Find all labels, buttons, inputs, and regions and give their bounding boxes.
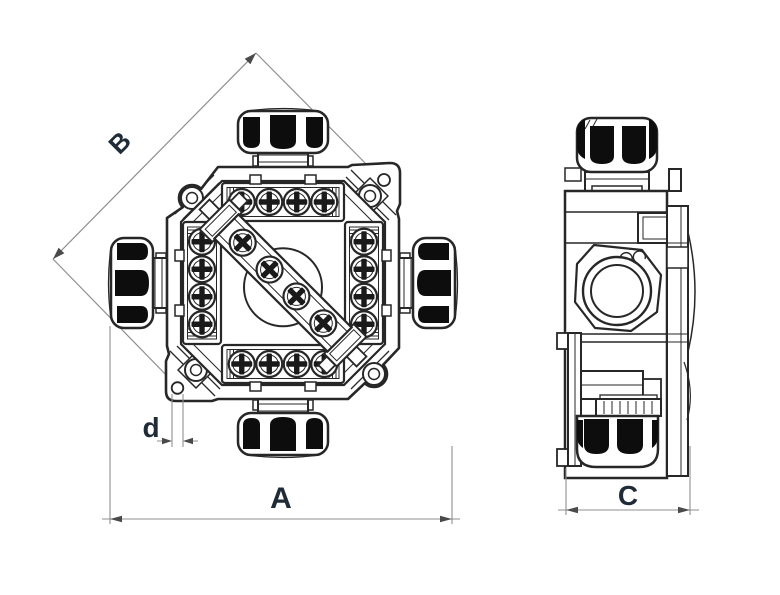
entry-hole-inner <box>591 265 643 317</box>
mounting-hole-top-right <box>378 174 390 186</box>
far-side-bulge <box>688 232 695 352</box>
cable-gland-left <box>109 238 169 328</box>
cable-gland-right <box>398 238 458 328</box>
dim-a-arrow-right <box>440 516 452 522</box>
dimension-label-c: C <box>618 480 638 511</box>
side-flange-right <box>667 169 695 476</box>
dim-c-arrow-left <box>566 507 578 513</box>
gland-nut-face <box>575 245 661 331</box>
mounting-hole-bottom-left <box>172 382 184 394</box>
front-view <box>109 109 458 458</box>
dimension-label-d: d <box>142 412 159 443</box>
cable-gland-bottom <box>238 398 328 458</box>
dim-c-arrow-right <box>678 507 690 513</box>
side-gland-top <box>565 118 657 197</box>
dim-d-arrow-left <box>162 438 172 444</box>
side-view <box>557 118 695 478</box>
dim-a-arrow-left <box>110 516 122 522</box>
dimension-label-b: B <box>102 125 136 159</box>
dim-d-arrow-right <box>183 438 193 444</box>
technical-drawing-page: B <box>0 0 780 595</box>
dimension-label-a: A <box>270 482 292 515</box>
junction-box-technical-drawing: B <box>0 0 780 595</box>
cable-gland-top <box>238 109 328 169</box>
